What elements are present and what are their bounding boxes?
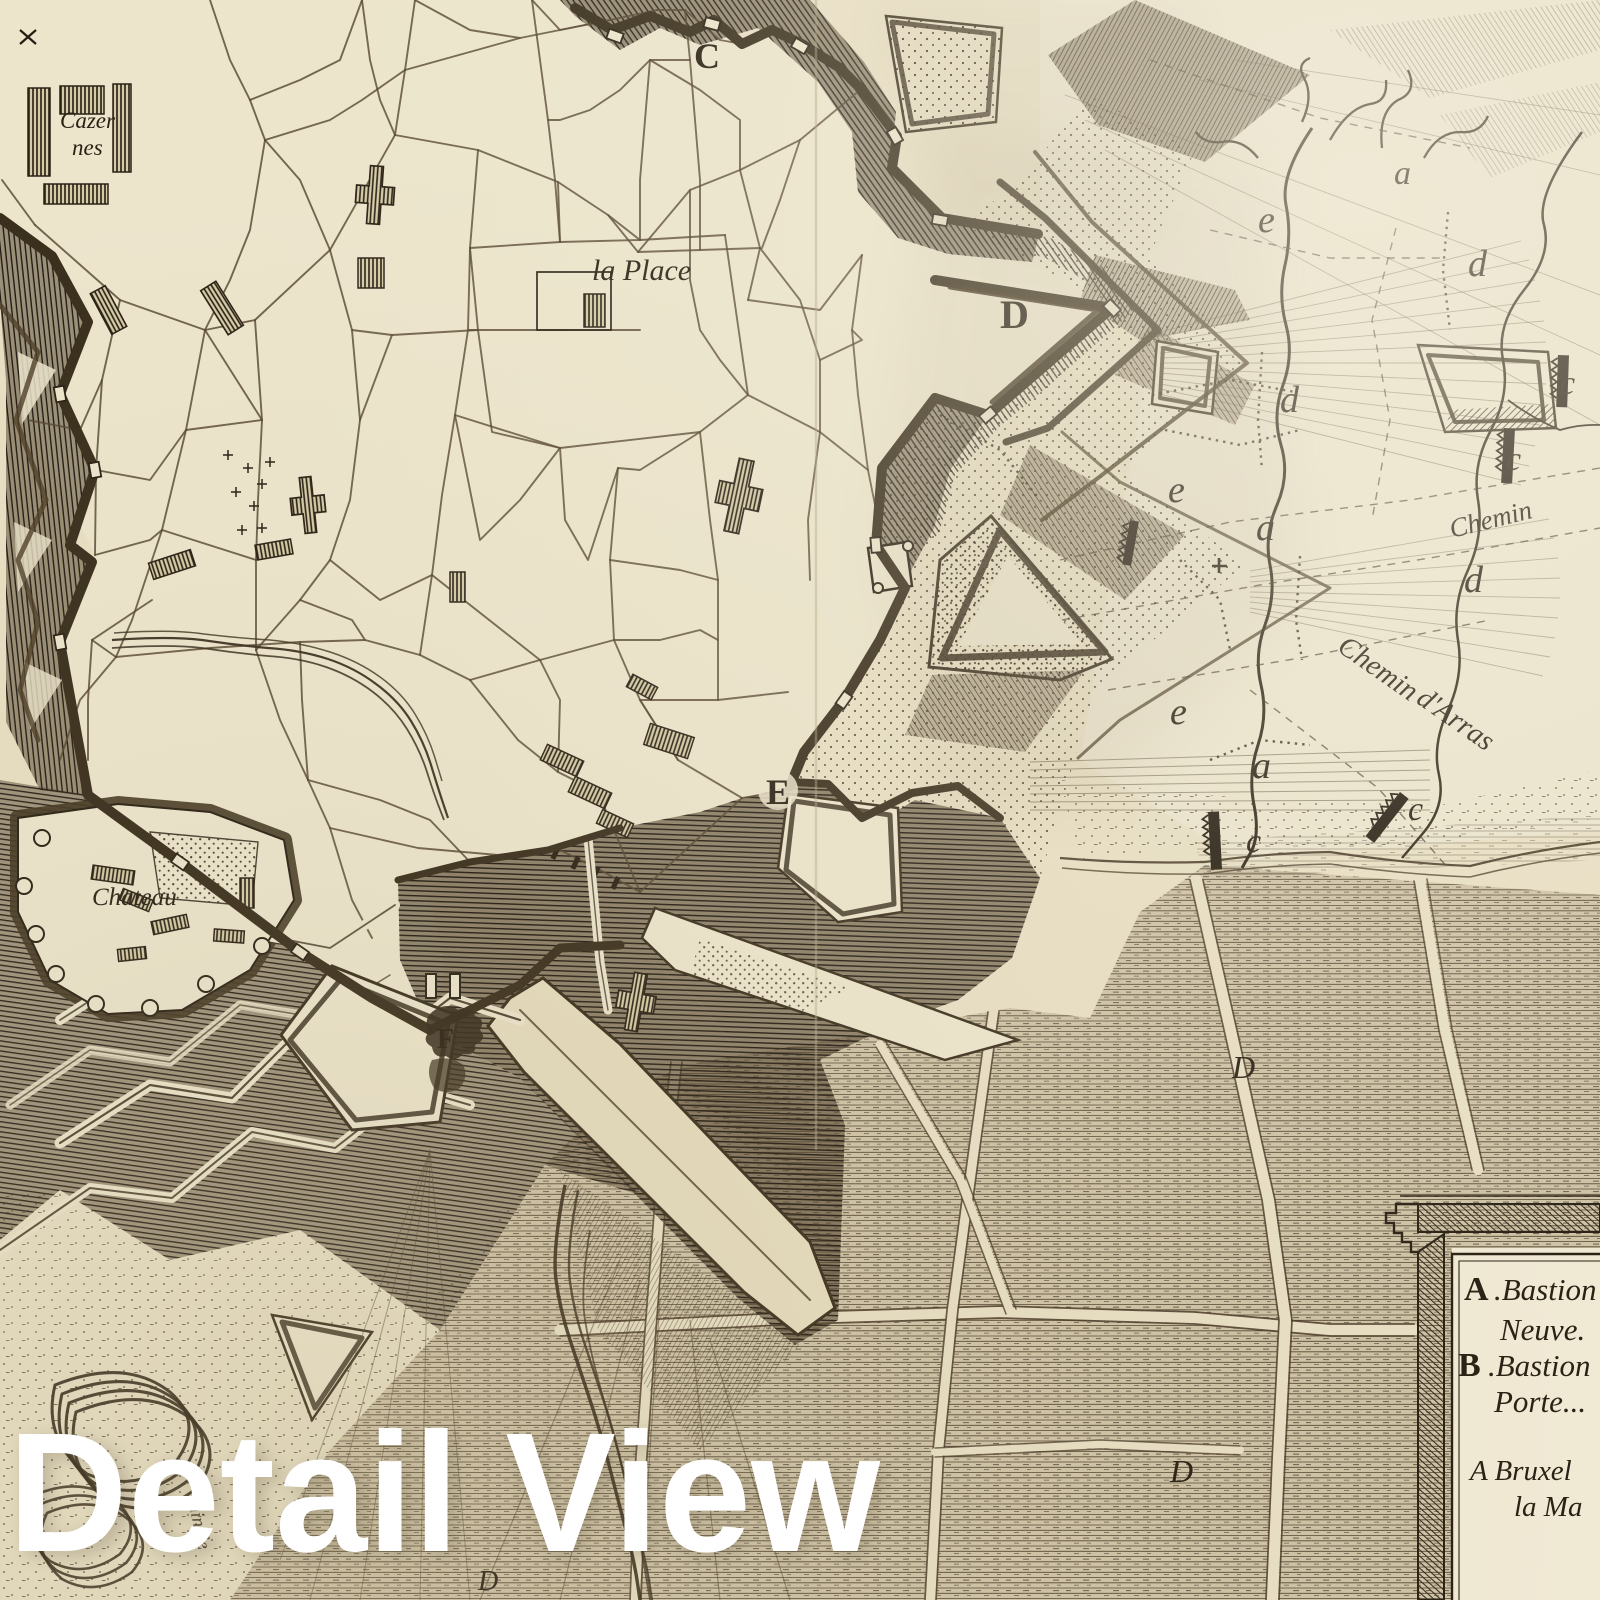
svg-text:Detail View: Detail View [8, 1398, 881, 1588]
